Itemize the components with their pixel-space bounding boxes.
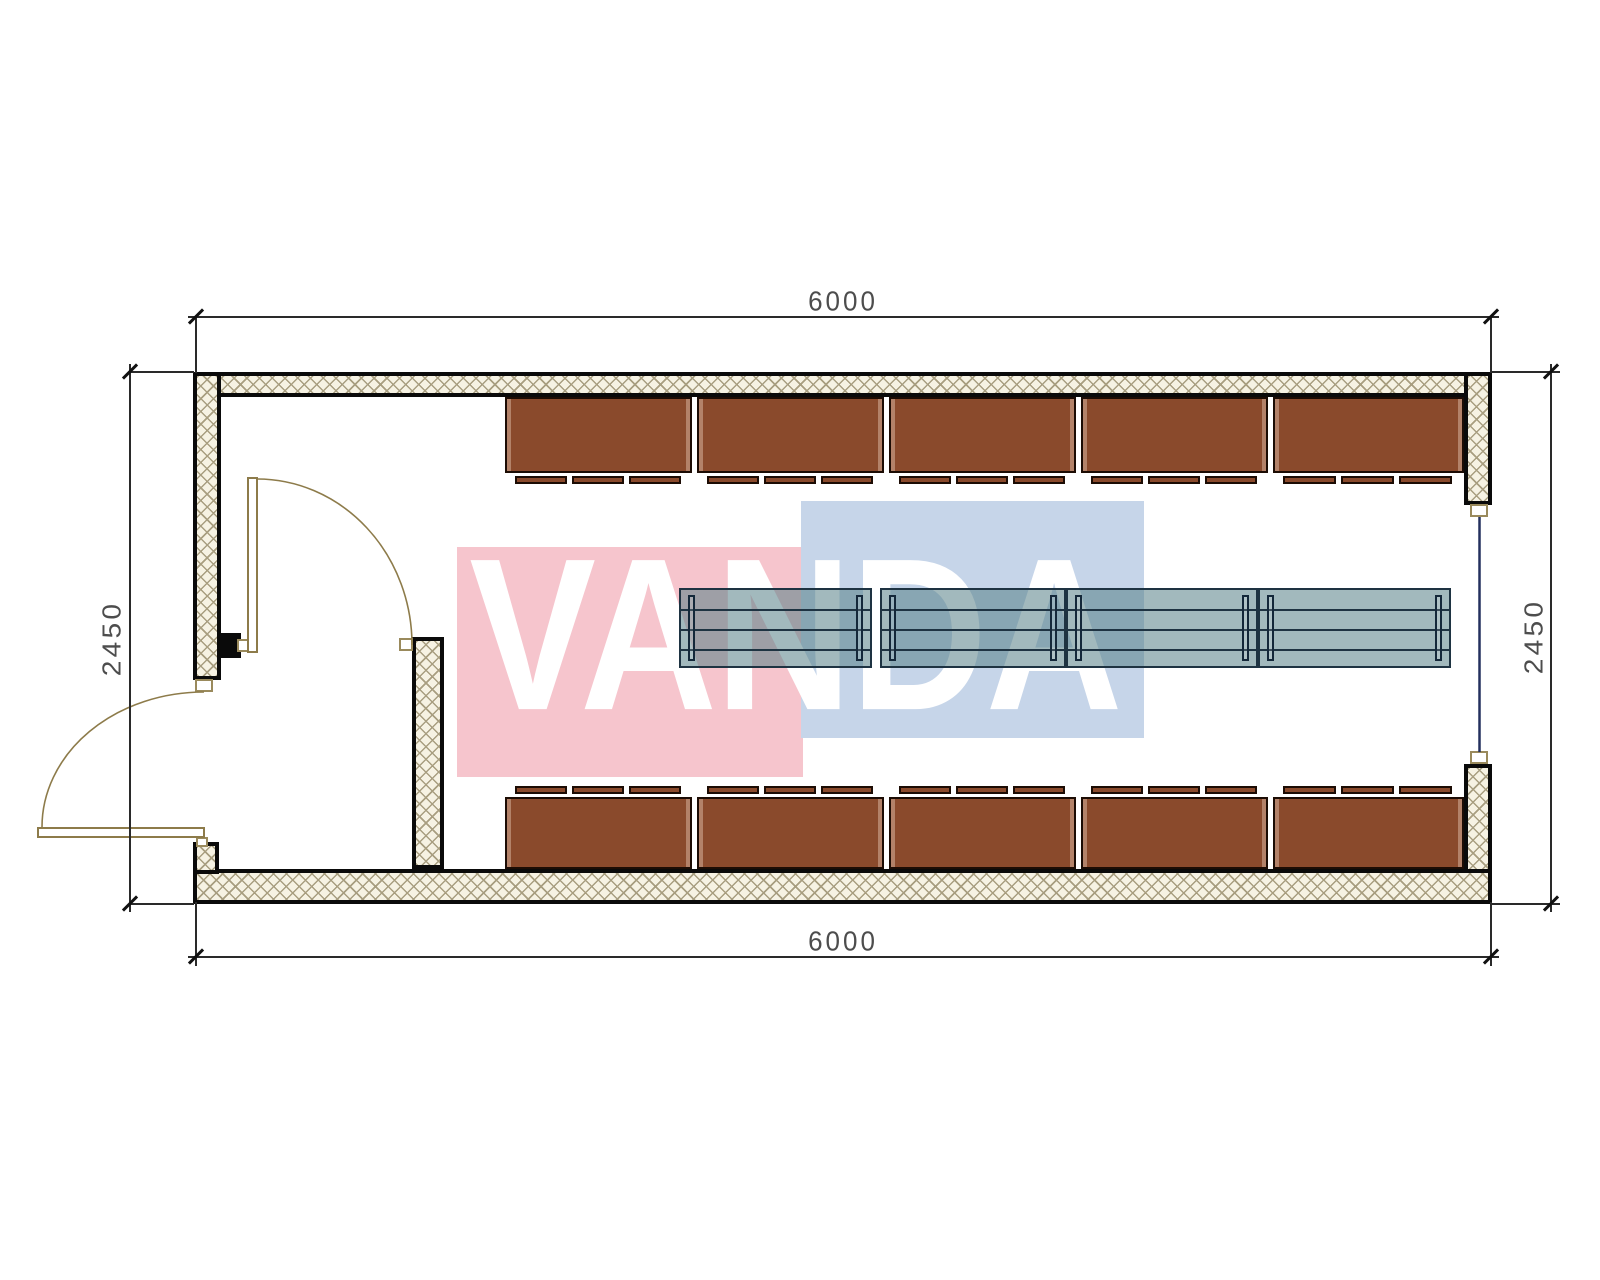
exterior-door-swing-arc: [42, 692, 204, 827]
dim-ext-left-bottom: [130, 903, 194, 905]
dim-text-top: 6000: [768, 285, 918, 318]
interior-door-swing-arc: [257, 479, 412, 645]
dim-text-left: 2450: [97, 574, 128, 704]
dim-line-right: [1550, 364, 1552, 912]
dim-ext-top-right: [1490, 317, 1492, 373]
dim-ext-top-left: [195, 317, 197, 373]
dim-ext-left-top: [130, 371, 194, 373]
floor-plan: VANDA 6000 6000 2450: [0, 0, 1600, 1280]
linework-overlay: [0, 0, 1600, 1280]
dim-text-bottom: 6000: [768, 925, 918, 958]
dim-line-left: [129, 364, 131, 912]
dim-text-right: 2450: [1519, 572, 1550, 702]
